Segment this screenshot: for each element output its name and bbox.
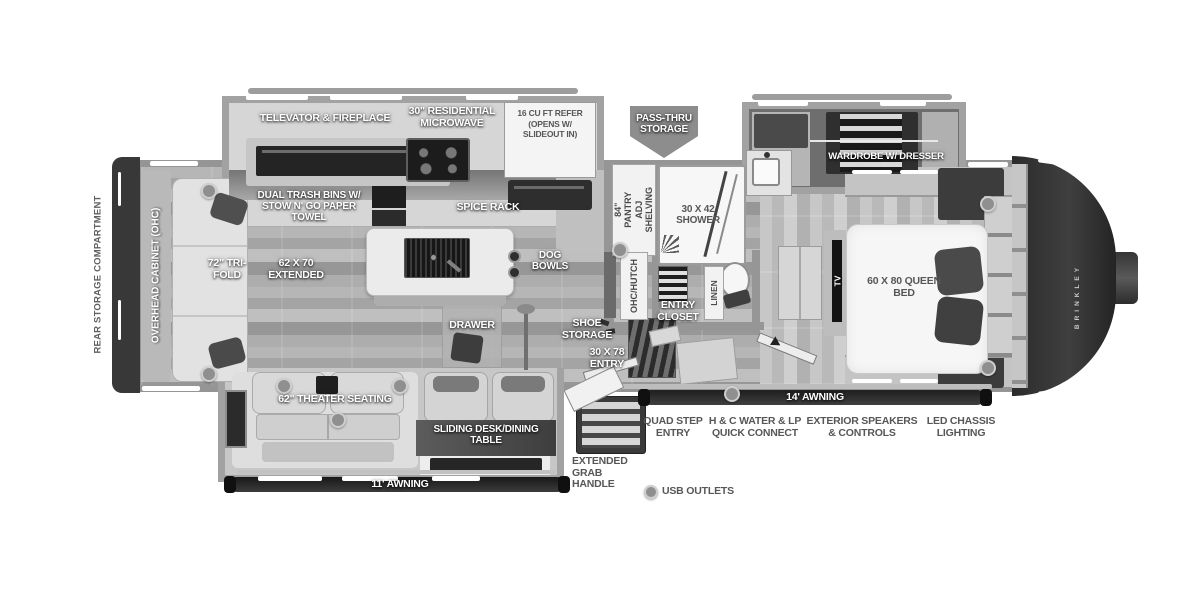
bed-pillow [934, 296, 985, 347]
window-slit [900, 170, 938, 174]
chair-cushion [433, 376, 479, 392]
televator-label: TELEVATOR & FIREPLACE [240, 113, 410, 125]
vanity-sink [752, 158, 780, 186]
window-slit [466, 95, 518, 100]
cabinet-seam [799, 247, 801, 319]
brand-label-box: BRINKLEY [1070, 240, 1086, 352]
floor-lamp [524, 308, 528, 370]
chair-cushion [501, 376, 545, 392]
cooktop-range [406, 138, 470, 182]
usb-legend-dot [644, 485, 658, 499]
usb-outlet-dot [980, 196, 996, 212]
usb-outlet-dot [612, 242, 628, 258]
sofa-seam [173, 245, 247, 247]
rear-cap [112, 157, 140, 393]
entry-closet-shelves [658, 266, 688, 302]
window-slit [330, 95, 402, 100]
awning-rail [238, 470, 556, 474]
sofa-seam [173, 315, 247, 317]
dog-bowl [508, 266, 521, 279]
entry-closet-label: ENTRY CLOSET [646, 300, 710, 323]
rear-window-slit [118, 172, 121, 206]
awning-14-label: 14' AWNING [760, 392, 870, 404]
usb-outlet-dot [201, 183, 217, 199]
floorplan: REAR STORAGE COMPARTMENT OVERHEAD CABINE… [0, 0, 1200, 600]
usb-outlet-dot [276, 378, 292, 394]
window-slit [880, 101, 926, 106]
usb-outlet-dot [330, 412, 346, 428]
refer-handle [514, 186, 584, 189]
quad-steps-treads [582, 402, 640, 448]
footrest-seam [327, 415, 329, 439]
drawer-label: DRAWER [444, 320, 500, 332]
theater-footrest [256, 414, 400, 440]
theater-base [262, 442, 394, 462]
trash-bins-label: DUAL TRASH BINS w/ STOW N' GO PAPER TOWE… [248, 190, 370, 223]
dinette-chair [492, 372, 554, 422]
hutch-label: OHC/HUTCH [629, 259, 639, 313]
window-slit [258, 476, 322, 481]
entry-door-label: 30 X 78 ENTRY [580, 347, 634, 370]
usb-outlet-dot [980, 360, 996, 376]
medicine-cabinet [754, 114, 808, 148]
tv-label-box: TV [828, 266, 846, 296]
sliding-desk-label: SLIDING DESK/DINING TABLE [424, 424, 548, 446]
window-slit [142, 386, 200, 391]
tv-label: TV [832, 276, 842, 287]
chassis-lighting-caption: LED CHASSIS LIGHTING [916, 416, 1006, 439]
vanity-faucet [764, 152, 770, 158]
shower-label: 30 x 42 SHOWER [660, 204, 736, 226]
dresser-drawers [840, 114, 902, 172]
window-slit [758, 101, 808, 106]
usb-outlet-dot [392, 378, 408, 394]
hutch-box: OHC/HUTCH [620, 252, 648, 320]
hutch-cabinet [604, 252, 616, 318]
queen-bed-label: 60 x 80 QUEEN BED [858, 276, 950, 299]
dinette-chair [424, 372, 488, 422]
usb-outlet-dot [724, 386, 740, 402]
desk-chair [450, 332, 484, 364]
usb-outlet-dot [201, 366, 217, 382]
theater-console [316, 376, 338, 394]
island-sink [404, 238, 470, 278]
bedroom-wall [752, 250, 760, 332]
slideout-window [225, 390, 247, 448]
rear-storage-label: REAR STORAGE COMPARTMENT [88, 198, 108, 350]
window-slit [852, 170, 892, 174]
spice-rack-label: SPICE RACK [428, 202, 548, 214]
pantry-label: 84" PANTRY ADJ SHELVING [613, 187, 654, 232]
showerhead-icon [661, 235, 679, 253]
pass-thru-label: PASS-THRU STORAGE [632, 113, 696, 135]
grab-handle-caption: EXTENDED GRAB HANDLE [572, 456, 638, 491]
trifold-label: 72" TRI-FOLD [196, 258, 258, 281]
overhead-cabinet-text: OVERHEAD CABINET (OHC) [151, 207, 162, 343]
dog-bowls-label: DOG BOWLS [524, 250, 576, 272]
overhead-cabinet-label: OVERHEAD CABINET (OHC) [143, 200, 169, 350]
awning-11-label: 11' AWNING [330, 479, 470, 491]
rear-window-slit [118, 300, 121, 340]
window-slit [150, 161, 198, 166]
slide-topper-bar [752, 94, 952, 100]
window-slit [246, 95, 308, 100]
island-base [374, 296, 506, 306]
cap-highlight [1081, 365, 1105, 385]
dog-bowl [508, 250, 521, 263]
wardrobe-label: WARDROBE w/ DRESSER [812, 152, 960, 162]
shoe-storage-label: SHOE STORAGE [558, 318, 616, 341]
usb-legend-caption: USB OUTLETS [662, 486, 752, 498]
floor-lamp-shade [517, 304, 535, 314]
microwave-label: 30" RESIDENTIAL MICROWAVE [398, 106, 506, 129]
window-slit [852, 379, 892, 383]
awning-end-cap [224, 476, 236, 493]
refer-label-box: 16 CU FT REFER (OPENS w/ SLIDEOUT IN) [504, 102, 596, 178]
sofa-extended-label: 62 x 70 EXTENDED [262, 258, 330, 281]
awning-end-cap [638, 389, 650, 406]
slide-topper-bar [248, 88, 578, 94]
speakers-caption: EXTERIOR SPEAKERS & CONTROLS [806, 416, 918, 439]
linen-label: LINEN [709, 280, 719, 306]
water-lp-caption: H & C WATER & LP QUICK CONNECT [700, 416, 810, 439]
quad-step-caption: QUAD STEP ENTRY [636, 416, 710, 439]
theater-label: 62" THEATER SEATING [270, 394, 400, 406]
brand-label: BRINKLEY [1075, 263, 1082, 328]
tv-wall-cabinet [778, 246, 822, 320]
awning-rail [576, 384, 992, 389]
awning-end-cap [980, 389, 992, 406]
trash-bin [372, 210, 406, 226]
step-landing-platform [676, 337, 738, 385]
headboard-cabinets [984, 196, 1014, 358]
window-slit [900, 379, 938, 383]
refer-label: 16 CU FT REFER (OPENS w/ SLIDEOUT IN) [508, 108, 592, 140]
front-wall-cabinets [1012, 164, 1028, 388]
trash-bin [372, 186, 406, 208]
window-slit [968, 162, 1008, 167]
awning-end-cap [558, 476, 570, 493]
dresser-rail [810, 140, 938, 142]
rear-storage-text: REAR STORAGE COMPARTMENT [93, 195, 104, 353]
faucet [430, 254, 437, 261]
